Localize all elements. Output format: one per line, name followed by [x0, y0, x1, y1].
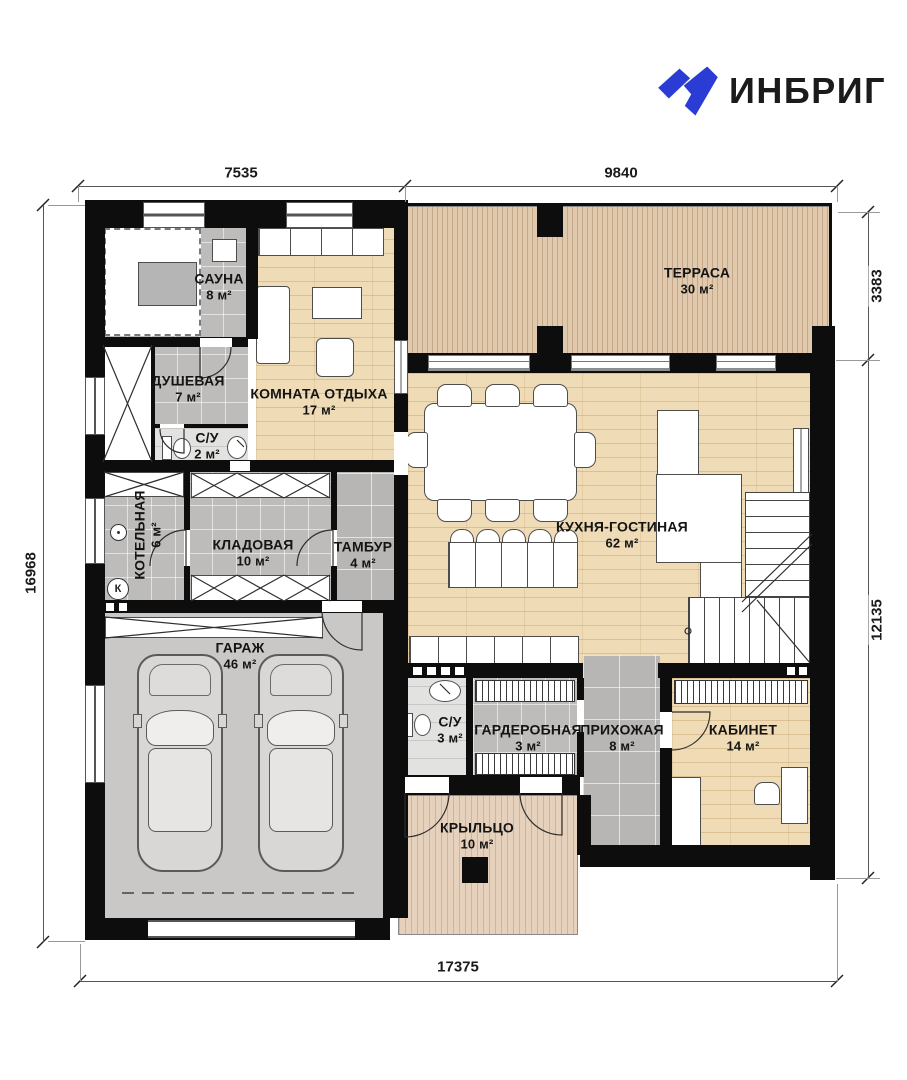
- door-opening: [322, 601, 362, 612]
- extension-line: [78, 186, 79, 202]
- wall: [466, 678, 473, 777]
- terrace-post: [537, 326, 563, 355]
- terrace-deck: [406, 206, 832, 355]
- room-area: 6 м²: [149, 522, 166, 548]
- vent-icon: [799, 667, 807, 675]
- room-label-shower: ДУШЕВАЯ 7 м²: [151, 371, 224, 406]
- room-label-sauna: САУНА 8 м²: [194, 269, 243, 304]
- wall: [246, 225, 258, 339]
- vent-icon: [455, 667, 464, 675]
- boiler-tank-icon: [110, 524, 127, 541]
- room-name: КУХНЯ-ГОСТИНАЯ: [556, 517, 688, 535]
- dining-table: [424, 403, 577, 501]
- room-name: КЛАДОВАЯ: [212, 535, 293, 553]
- room-name: КАБИНЕТ: [709, 720, 777, 738]
- extension-line: [836, 878, 880, 879]
- closet: [103, 345, 152, 462]
- extension-line: [836, 360, 880, 361]
- door-opening: [200, 338, 232, 347]
- dimension-value: 9840: [600, 165, 641, 182]
- car-top-view: [137, 654, 223, 872]
- dimension-value: 12135: [869, 595, 886, 645]
- sauna-bench-step: [138, 262, 197, 306]
- sink-icon: [429, 680, 461, 702]
- car-mirror: [133, 714, 142, 728]
- storage-shelf-bottom: [191, 575, 330, 601]
- office-desk: [781, 767, 808, 824]
- boiler-unit-icon: К: [107, 578, 129, 600]
- stairs-upper-flight: [745, 492, 810, 598]
- room-name: ГАРДЕРОБНАЯ: [474, 720, 582, 738]
- dimension-value: 3383: [869, 265, 886, 306]
- room-name: КОМНАТА ОТДЫХА: [250, 384, 387, 402]
- car-mirror: [218, 714, 227, 728]
- dimension-line-left: [43, 205, 44, 942]
- wall: [85, 200, 407, 228]
- room-label-wardrobe: ГАРДЕРОБНАЯ 3 м²: [474, 720, 582, 755]
- vent-icon: [427, 667, 436, 675]
- room-area: 4 м²: [350, 556, 376, 573]
- dimension-value: 16968: [23, 548, 40, 598]
- dining-chair: [533, 384, 568, 407]
- dining-chair: [574, 432, 596, 468]
- room-area: 8 м²: [609, 739, 635, 756]
- room-label-lounge: КОМНАТА ОТДЫХА 17 м²: [250, 384, 387, 419]
- brand-name: ИНБРИГ: [729, 70, 886, 112]
- door-opening: [520, 777, 562, 793]
- wall: [394, 200, 408, 432]
- room-label-office: КАБИНЕТ 14 м²: [709, 720, 777, 755]
- dimension-line-right: [868, 212, 869, 878]
- car-windshield: [146, 710, 214, 746]
- extension-line: [837, 884, 838, 981]
- dining-chair: [485, 384, 520, 407]
- room-name: С/У: [195, 428, 218, 446]
- room-name: ДУШЕВАЯ: [151, 371, 224, 389]
- passage-opening: [394, 432, 408, 475]
- room-name: ТЕРРАСА: [664, 263, 730, 281]
- office-chair: [754, 782, 780, 805]
- room-area: 17 м²: [302, 403, 335, 420]
- extension-line: [405, 186, 406, 202]
- room-name: КОТЕЛЬНАЯ: [130, 490, 148, 579]
- dining-chair: [437, 384, 472, 407]
- glass-door: [571, 355, 670, 371]
- room-area: 30 м²: [680, 282, 713, 299]
- room-name: ПРИХОЖАЯ: [580, 720, 664, 738]
- window: [85, 685, 105, 783]
- wall: [383, 600, 408, 918]
- car-hood: [270, 664, 332, 696]
- car-mirror: [254, 714, 263, 728]
- wall: [394, 475, 408, 600]
- wall: [660, 748, 672, 848]
- room-label-wc-small: С/У 2 м²: [194, 428, 220, 463]
- room-label-kitchen-living: КУХНЯ-ГОСТИНАЯ 62 м²: [556, 517, 688, 552]
- dining-chair: [485, 499, 520, 522]
- window: [143, 202, 205, 228]
- lounge-cabinet: [258, 228, 384, 256]
- window: [286, 202, 353, 228]
- car-roof: [148, 748, 212, 832]
- terrace-edge: [829, 203, 832, 355]
- room-area: 3 м²: [515, 739, 541, 756]
- office-sofa: [668, 777, 701, 853]
- garage-bench: [105, 617, 323, 638]
- car-hood: [149, 664, 211, 696]
- storage-shelf-top: [191, 473, 330, 498]
- sofa: [657, 410, 699, 476]
- dot-icon: [117, 531, 120, 534]
- extension-line: [80, 944, 81, 981]
- extension-line: [48, 205, 85, 206]
- dining-chair: [406, 432, 428, 468]
- room-label-boiler: КОТЕЛЬНАЯ 6 м²: [130, 490, 165, 579]
- vent-icon: [119, 603, 127, 611]
- room-label-wc: С/У 3 м²: [437, 712, 463, 747]
- room-area: 62 м²: [605, 536, 638, 553]
- room-area: 2 м²: [194, 447, 220, 464]
- sauna-heater: [212, 239, 237, 262]
- door-opening: [184, 530, 190, 566]
- room-area: 10 м²: [460, 837, 493, 854]
- extension-line: [837, 186, 838, 202]
- room-label-terrace: ТЕРРАСА 30 м²: [664, 263, 730, 298]
- room-label-garage: ГАРАЖ 46 м²: [215, 638, 264, 673]
- extension-line: [48, 941, 85, 942]
- boiler-mark: К: [115, 583, 122, 595]
- terrace-edge: [406, 203, 832, 206]
- clothes-rack: [475, 753, 575, 775]
- room-area: 46 м²: [223, 657, 256, 674]
- room-area: 10 м²: [236, 554, 269, 571]
- clothes-rack: [475, 680, 575, 702]
- office-wardrobe: [674, 680, 808, 704]
- vent-icon: [441, 667, 450, 675]
- room-name: С/У: [438, 712, 461, 730]
- wall: [85, 200, 105, 940]
- door-opening: [160, 424, 184, 428]
- dining-chair: [437, 499, 472, 522]
- car-mirror: [339, 714, 348, 728]
- glass-door: [428, 355, 530, 371]
- wall: [103, 460, 397, 472]
- vent-icon: [106, 603, 114, 611]
- room-label-hallway: ПРИХОЖАЯ 8 м²: [580, 720, 664, 755]
- garage-door-opening: [148, 920, 355, 938]
- stairs-lower-flight: [688, 597, 810, 664]
- dimension-value: 17375: [433, 959, 483, 976]
- extension-line: [838, 212, 880, 213]
- room-area: 7 м²: [175, 390, 201, 407]
- car-roof: [269, 748, 333, 832]
- kitchen-counter: [409, 636, 579, 664]
- room-name: ТАМБУР: [334, 537, 392, 555]
- porch-deck: [398, 795, 578, 935]
- brand-logo-icon: [655, 64, 721, 118]
- toilet-bowl-icon: [414, 714, 431, 736]
- logo-shape: [658, 69, 690, 99]
- car-windshield: [267, 710, 335, 746]
- room-name: ГАРАЖ: [215, 638, 264, 656]
- dimension-line-bottom: [80, 981, 837, 982]
- wall: [660, 678, 672, 712]
- room-name: КРЫЛЬЦО: [440, 818, 514, 836]
- brand-logo: ИНБРИГ: [655, 64, 886, 118]
- room-label-storage: КЛАДОВАЯ 10 м²: [212, 535, 293, 570]
- lounge-table: [312, 287, 362, 319]
- porch-column: [462, 857, 488, 883]
- toilet-bowl-icon: [173, 438, 191, 459]
- vent-icon: [413, 667, 422, 675]
- dimension-line-top: [78, 186, 837, 187]
- room-label-vestibule: ТАМБУР 4 м²: [334, 537, 392, 572]
- vestibule-floor: [335, 470, 397, 602]
- wall: [810, 353, 835, 880]
- room-label-porch: КРЫЛЬЦО 10 м²: [440, 818, 514, 853]
- room-area: 8 м²: [206, 288, 232, 305]
- window: [85, 498, 105, 564]
- room-area: 14 м²: [726, 739, 759, 756]
- toilet-tank-icon: [162, 436, 172, 460]
- sink-icon: [227, 436, 247, 459]
- glass-door: [716, 355, 776, 371]
- lounge-armchair: [316, 338, 354, 377]
- room-name: САУНА: [194, 269, 243, 287]
- car-top-view: [258, 654, 344, 872]
- wall: [580, 845, 835, 867]
- lounge-sofa: [256, 286, 290, 364]
- logo-shape: [684, 67, 718, 116]
- door-opening: [230, 461, 250, 471]
- terrace-post: [537, 203, 563, 237]
- dimension-value: 7535: [220, 165, 261, 182]
- vent-icon: [787, 667, 795, 675]
- room-area: 3 м²: [437, 731, 463, 748]
- floor-plan-page: К: [0, 0, 907, 1080]
- door-opening: [405, 777, 449, 793]
- window: [394, 340, 408, 394]
- window: [85, 377, 105, 435]
